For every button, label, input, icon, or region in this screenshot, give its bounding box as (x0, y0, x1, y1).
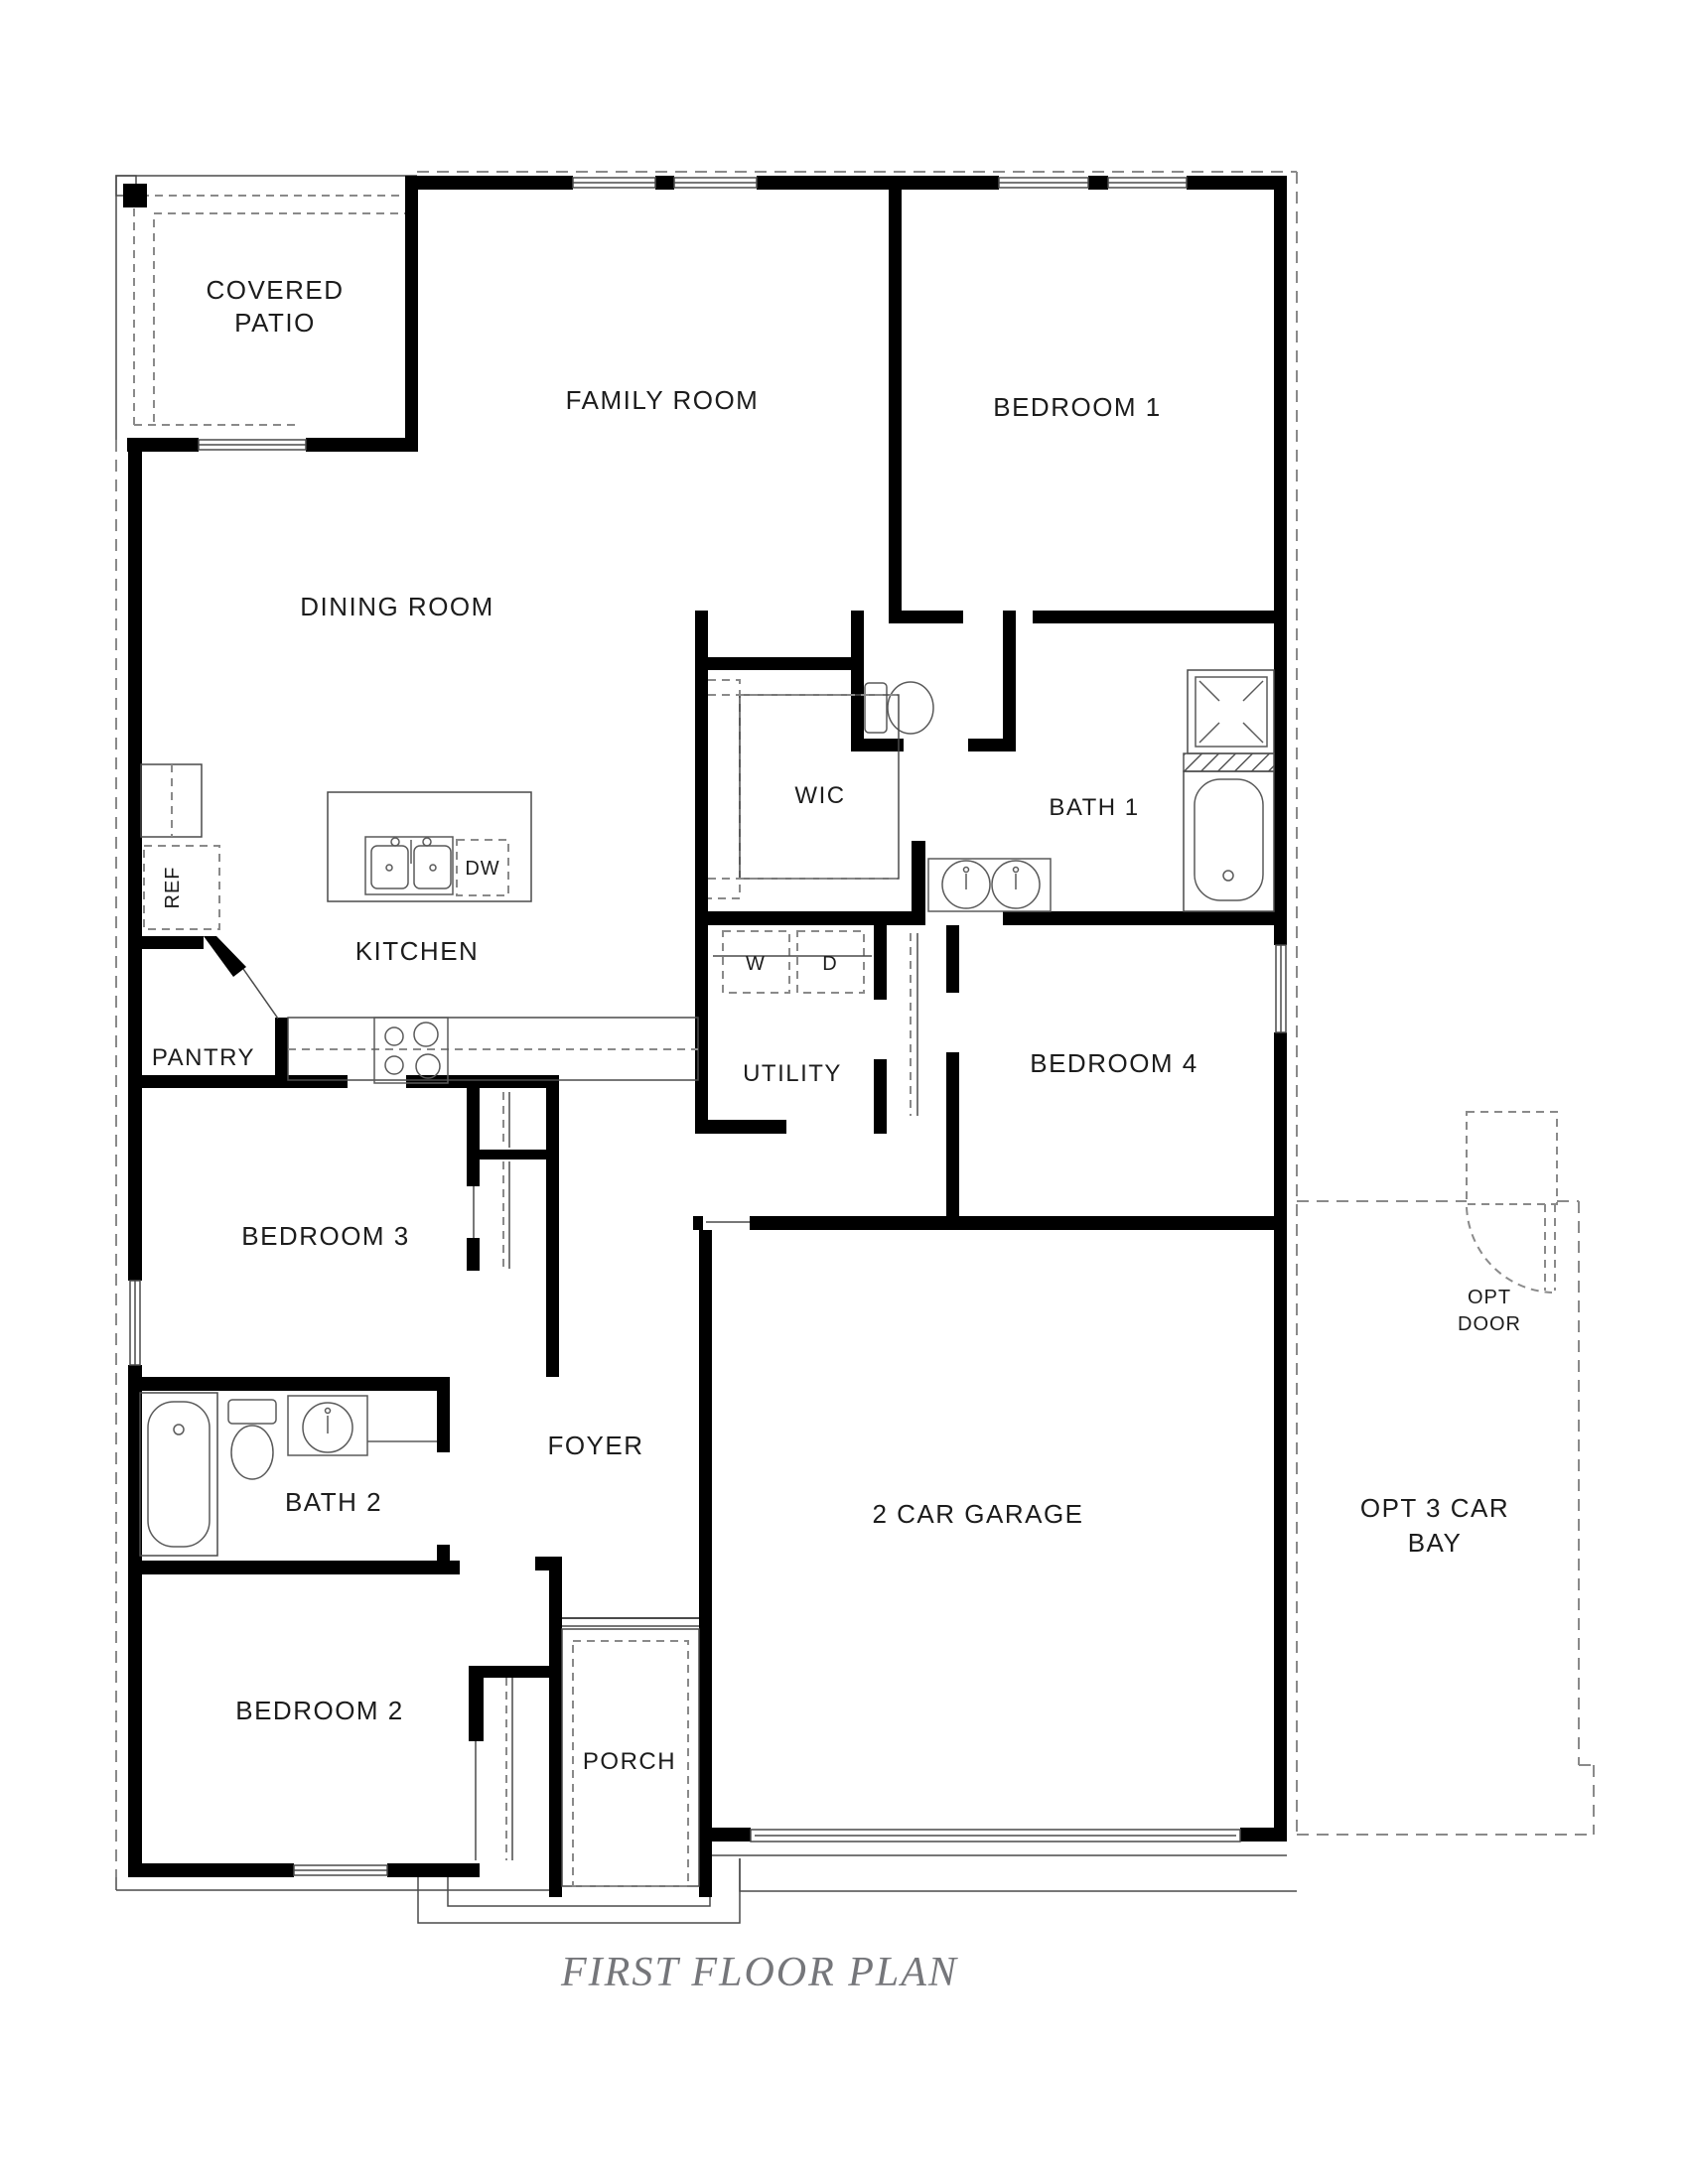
label-utility: UTILITY (743, 1060, 842, 1087)
label-pantry: PANTRY (152, 1044, 255, 1071)
label-opt-door: OPT (1468, 1287, 1511, 1308)
pantry-door-icon (243, 969, 278, 1019)
floor-plan-drawing: COVERED PATIO FAMILY ROOM BEDROOM 1 DINI… (0, 0, 1688, 2184)
label-kitchen: KITCHEN (355, 936, 480, 966)
label-bedroom1: BEDROOM 1 (993, 392, 1162, 422)
bath1-fixtures (865, 670, 1274, 911)
label-bedroom3: BEDROOM 3 (241, 1221, 410, 1251)
vanity-sink-icon (928, 859, 1051, 911)
label-wic: WIC (794, 782, 845, 809)
front-door-threshold (562, 1618, 699, 1626)
label-garage: 2 CAR GARAGE (872, 1499, 1083, 1529)
label-opt-door-2: DOOR (1458, 1313, 1521, 1335)
utility-fixtures (713, 931, 872, 993)
bathtub-icon (140, 1393, 217, 1556)
label-bath1: BATH 1 (1049, 794, 1139, 821)
garage-door-icon (751, 1830, 1240, 1842)
shower-curb (1184, 753, 1274, 771)
label-family-room: FAMILY ROOM (566, 385, 760, 415)
room-labels: COVERED PATIO FAMILY ROOM BEDROOM 1 DINI… (152, 275, 1521, 1775)
page-title: FIRST FLOOR PLAN (560, 1950, 958, 1995)
label-washer: W (746, 953, 766, 975)
label-dining-room: DINING ROOM (300, 592, 494, 621)
label-dryer: D (822, 953, 837, 975)
label-opt-bay: OPT 3 CAR (1360, 1493, 1509, 1523)
label-covered-patio: COVERED (206, 275, 344, 305)
toilet-icon (228, 1400, 276, 1479)
counter (141, 764, 698, 1080)
shower-icon (1188, 670, 1274, 753)
bath2-fixtures (140, 1393, 437, 1556)
vanity-sink-icon (288, 1396, 437, 1455)
opt-door-swing-icon (1467, 1112, 1557, 1293)
label-covered-patio-2: PATIO (234, 308, 316, 338)
kitchen-island (328, 792, 531, 901)
floor-plan-page: COVERED PATIO FAMILY ROOM BEDROOM 1 DINI… (0, 0, 1688, 2184)
label-bedroom4: BEDROOM 4 (1030, 1048, 1198, 1078)
label-porch: PORCH (583, 1748, 676, 1775)
label-foyer: FOYER (547, 1431, 643, 1460)
double-kitchen-sink-icon (365, 837, 453, 894)
label-ref: REF (162, 867, 184, 909)
label-bedroom2: BEDROOM 2 (235, 1696, 404, 1725)
kitchen-fixtures (141, 764, 698, 1083)
walls (123, 176, 1287, 1897)
label-opt-bay-2: BAY (1408, 1528, 1463, 1558)
label-bath2: BATH 2 (285, 1487, 382, 1517)
label-dw: DW (465, 858, 499, 880)
bathtub-icon (1184, 771, 1274, 911)
